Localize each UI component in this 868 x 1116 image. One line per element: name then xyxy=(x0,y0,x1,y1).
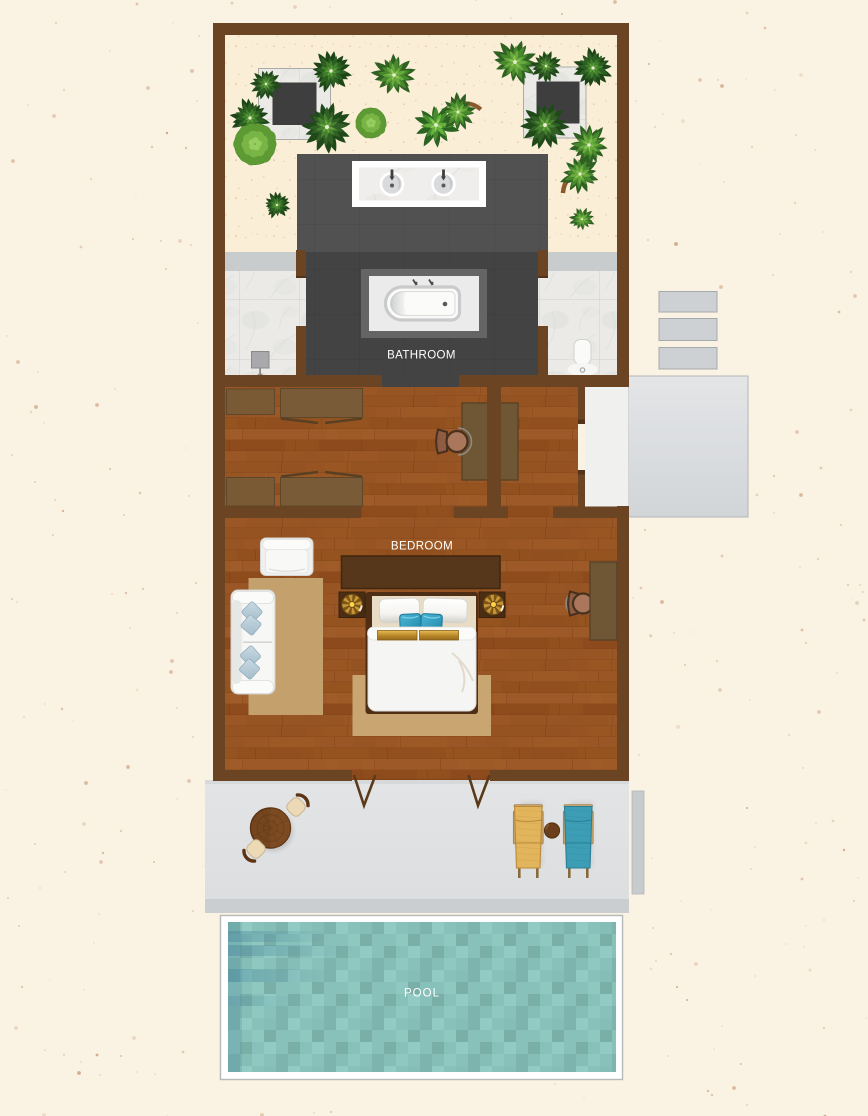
svg-text:POOL: POOL xyxy=(404,988,440,1000)
svg-text:BEDROOM: BEDROOM xyxy=(391,541,453,553)
svg-text:BATHROOM: BATHROOM xyxy=(387,350,456,362)
